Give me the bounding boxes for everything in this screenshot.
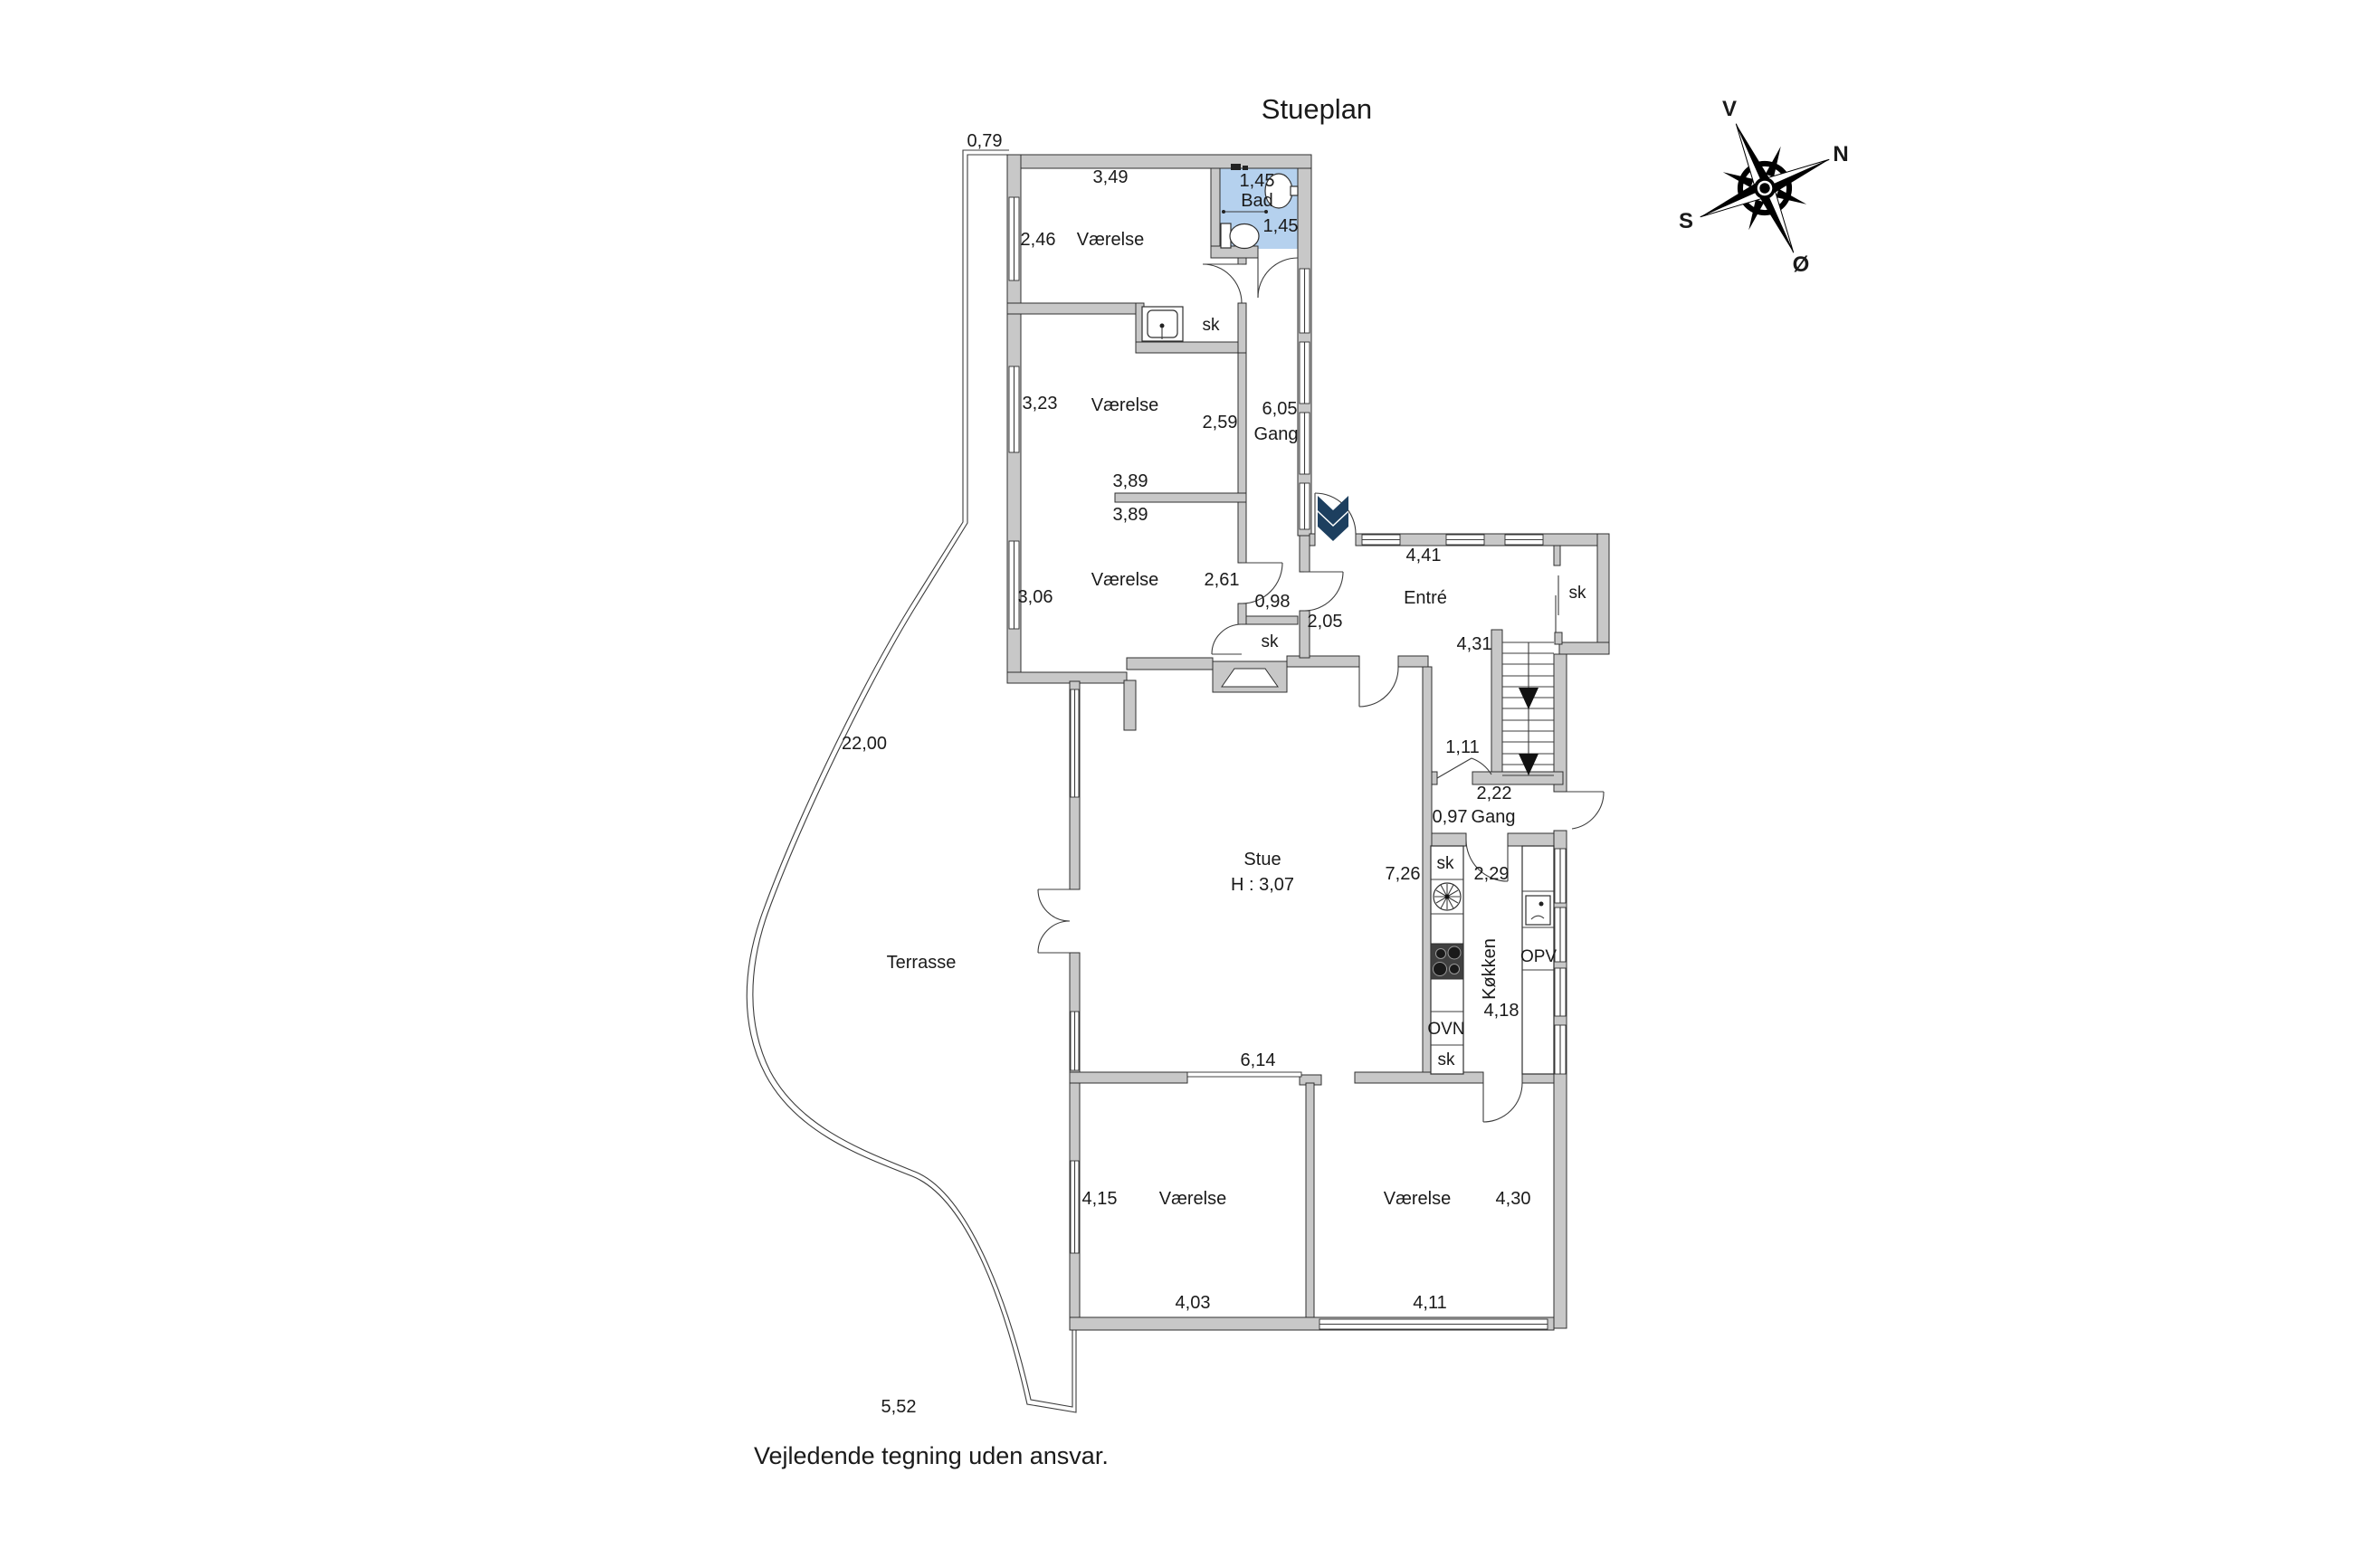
dim-hall-lower-width: 0,97 [1433,807,1468,827]
dim-bedroom-sw-right: 2,61 [1205,570,1240,590]
closet-label-hall: sk [1262,632,1280,651]
dim-stue-bottom: 6,14 [1241,1050,1276,1070]
door-closet-hall [1212,624,1242,654]
room-label-bedroom-s2: Værelse [1384,1189,1451,1209]
room-label-entre: Entré [1404,588,1447,608]
window [1009,541,1019,629]
dim-bedroom-mid-right: 2,59 [1203,413,1238,432]
door-bath [1258,258,1298,298]
compass-rose: V N S Ø [1672,95,1858,281]
dim-stue-ceiling: H : 3,07 [1231,875,1294,895]
stairs [1502,642,1554,775]
dim-entre-top: 4,41 [1406,546,1442,565]
window [1300,413,1310,474]
basin-icon [1142,307,1183,341]
dim-stue-right: 7,26 [1386,864,1421,884]
dim-bedroom-nw-left: 2,46 [1021,230,1056,250]
kitchen-sink-icon [1526,896,1550,925]
door-exterior-east [1567,792,1604,829]
window [1555,1025,1566,1074]
dim-bedroom-s2-right: 4,30 [1496,1189,1531,1209]
windows [1009,197,1566,1329]
window [1555,968,1566,1016]
floorplan-drawing: V N S Ø Stueplan Vejledende tegning uden… [0,0,2353,1568]
appliance-label-dishwasher: OPV [1520,947,1557,966]
dim-terrace-side: 22,00 [842,734,887,754]
dim-bedroom-sw-left: 3,06 [1018,587,1053,607]
window [1300,342,1310,404]
room-label-bedroom-s1: Værelse [1159,1189,1226,1209]
opening-lintel [1187,1072,1301,1077]
extractor-fan-icon [1434,883,1461,910]
compass-west-label: V [1722,97,1737,121]
door-terrace-double [1038,889,1070,953]
dim-bath-depth: 1,45 [1263,216,1299,236]
floorplan-page: V N S Ø Stueplan Vejledende tegning uden… [0,0,2353,1568]
window [1071,1012,1079,1070]
dim-bath-width: 1,45 [1240,171,1275,191]
dim-divider-lower: 3,89 [1113,505,1148,525]
dim-kitchen-width: 2,29 [1474,864,1510,884]
window [1555,849,1566,903]
closet-label-kitchen-bottom: sk [1438,1050,1456,1069]
cooktop-icon [1431,944,1463,979]
dim-bedroom-s1-left: 4,15 [1082,1189,1118,1209]
dim-bedroom-s2-bottom: 4,11 [1413,1293,1446,1313]
dim-divider-upper: 3,89 [1113,471,1148,491]
room-label-bedroom-nw: Værelse [1077,230,1144,250]
fixtures [1142,164,1554,1074]
room-label-hall-upper: Gang [1254,424,1299,444]
dim-bedroom-nw-top: 3,49 [1093,167,1129,187]
dim-bedroom-s1-bottom: 4,03 [1176,1293,1211,1313]
toilet-icon [1221,223,1259,249]
dim-closet-hall: 0,98 [1255,592,1291,612]
appliance-label-oven: OVN [1427,1020,1464,1039]
window [1319,1319,1548,1329]
window [1009,366,1019,452]
door-entre-stue [1359,667,1398,707]
dim-entre-left: 2,05 [1308,612,1343,632]
room-label-bath: Bad [1241,191,1273,211]
closet-label-niche: sk [1203,316,1221,335]
terrace-outline [747,150,1076,1412]
room-label-terrace: Terrasse [887,953,957,973]
window [1362,535,1400,545]
room-label-bedroom-mid: Værelse [1091,395,1158,415]
dim-terrace-bottom: 5,52 [881,1397,917,1417]
compass-south-label: S [1679,209,1693,233]
window [1300,483,1310,529]
dim-terrace-top: 0,79 [967,131,1003,151]
window [1505,535,1543,545]
window [1009,197,1019,280]
doors [1038,258,1604,1122]
disclaimer-note: Vejledende tegning uden ansvar. [754,1442,1109,1469]
stairs-down-arrow [1519,688,1538,709]
compass-north-label: N [1833,142,1848,166]
dim-kitchen-length: 4,18 [1484,1001,1519,1021]
room-label-stue: Stue [1243,850,1281,870]
room-label-kitchen: Køkken [1480,938,1500,1000]
dim-hall-lower-length: 2,22 [1477,784,1512,803]
closet-label-entre: sk [1569,584,1587,603]
door-bedroom-s2 [1483,1083,1522,1122]
dim-stairs: 4,31 [1457,634,1492,654]
window [1300,269,1310,333]
window [1071,689,1079,797]
door-bedroom-nw [1203,264,1242,303]
dim-hall-upper: 6,05 [1262,399,1298,419]
compass-east-label: Ø [1793,252,1810,277]
door-hall-entre [1304,572,1343,611]
window [1071,1161,1079,1253]
page-title: Stueplan [1262,93,1372,125]
room-label-hall-lower: Gang [1472,807,1516,827]
entrance-arrow-icon [1318,496,1348,541]
room-label-bedroom-sw: Værelse [1091,570,1158,590]
closet-label-kitchen-top: sk [1437,854,1455,873]
window [1446,535,1484,545]
dim-bedroom-mid-left: 3,23 [1023,394,1058,413]
dim-hall-lower-door: 1,11 [1445,737,1479,757]
